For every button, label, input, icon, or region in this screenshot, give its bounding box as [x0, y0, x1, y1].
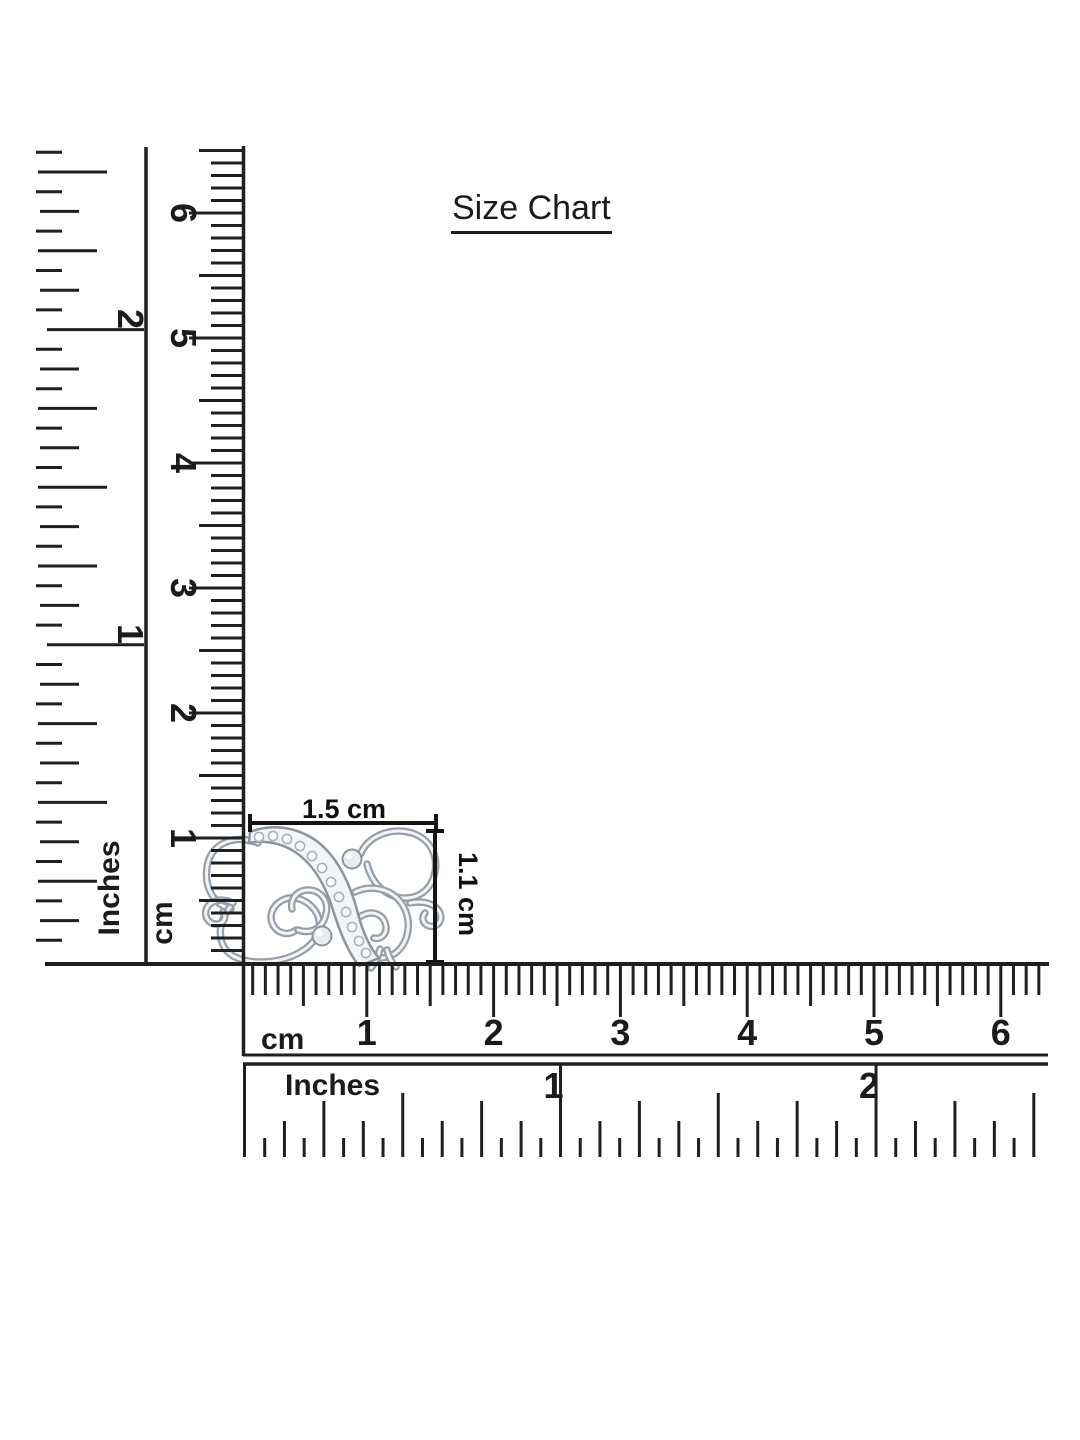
ruler-number: 6	[991, 1012, 1011, 1053]
ruler-number: 3	[163, 578, 204, 598]
ruler-number: 4	[163, 453, 204, 473]
ruler-number: 1	[163, 828, 204, 848]
size-chart-image: Size Chart	[0, 0, 1080, 1440]
width-dimension-label: 1.5 cm	[302, 794, 386, 824]
ruler-number: 5	[163, 328, 204, 348]
ruler-number: 1	[357, 1012, 377, 1053]
ruler-number: 2	[163, 703, 204, 723]
butterfly-jewelry-photo	[206, 827, 441, 968]
left-inch-ruler: 12	[36, 152, 151, 940]
height-dimension-label: 1.1 cm	[453, 852, 483, 936]
ruler-number: 2	[859, 1065, 879, 1106]
left-cm-unit-label: cm	[146, 901, 179, 944]
ruler-number: 3	[610, 1012, 630, 1053]
size-chart-drawing: 1.5 cm 1.1 cm 12 123456 123456 12 Inches…	[0, 0, 1080, 1440]
bottom-inches-unit-label: Inches	[285, 1069, 380, 1102]
ruler-number: 5	[864, 1012, 884, 1053]
left-cm-ruler: 123456	[163, 151, 242, 951]
ruler-frame	[45, 146, 1049, 1157]
ruler-number: 2	[110, 309, 151, 329]
bottom-inch-ruler: 12	[265, 1065, 1034, 1157]
ruler-number: 6	[163, 203, 204, 223]
ruler-number: 1	[543, 1065, 563, 1106]
bottom-cm-ruler: 123456	[253, 966, 1039, 1053]
bottom-cm-unit-label: cm	[261, 1023, 304, 1056]
left-inches-unit-label: Inches	[93, 840, 126, 935]
ruler-number: 4	[737, 1012, 757, 1053]
ruler-number: 2	[484, 1012, 504, 1053]
ruler-number: 1	[110, 624, 151, 644]
